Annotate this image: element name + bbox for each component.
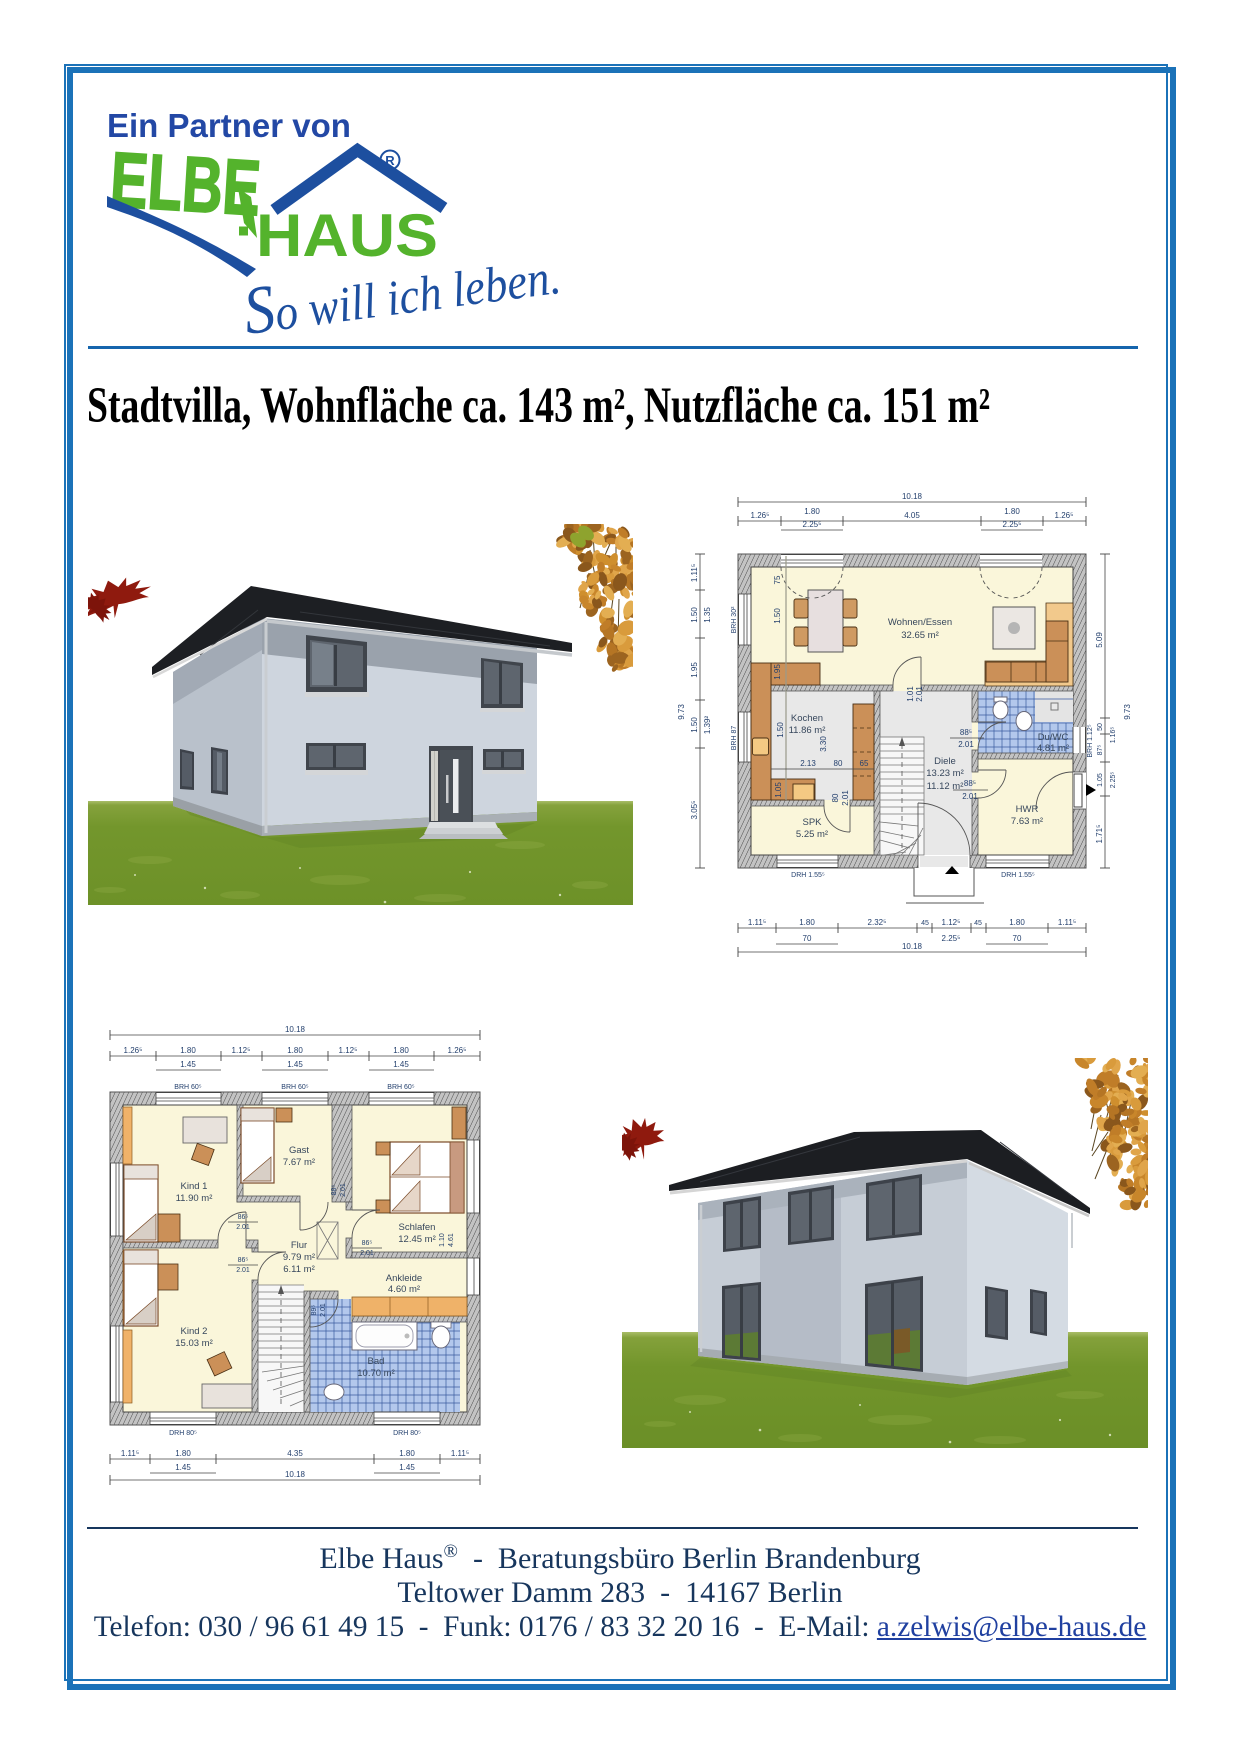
svg-text:1.45: 1.45 bbox=[393, 1060, 409, 1069]
svg-text:DRH 1.55⁵: DRH 1.55⁵ bbox=[791, 872, 825, 879]
svg-text:1.35: 1.35 bbox=[703, 607, 712, 623]
svg-text:88⁵: 88⁵ bbox=[964, 779, 976, 788]
svg-text:80: 80 bbox=[834, 759, 843, 768]
svg-text:4.60 m²: 4.60 m² bbox=[388, 1284, 420, 1295]
svg-text:BRH 87: BRH 87 bbox=[731, 726, 738, 751]
svg-text:Flur: Flur bbox=[291, 1240, 307, 1251]
svg-text:9.73: 9.73 bbox=[677, 704, 686, 720]
svg-text:3.30: 3.30 bbox=[819, 736, 828, 752]
svg-text:1.26⁵: 1.26⁵ bbox=[751, 511, 770, 520]
svg-text:1.80: 1.80 bbox=[287, 1046, 303, 1055]
svg-text:87⁵: 87⁵ bbox=[1097, 745, 1104, 756]
svg-text:1.05: 1.05 bbox=[774, 782, 783, 798]
svg-text:Wohnen/Essen: Wohnen/Essen bbox=[888, 617, 952, 628]
svg-text:Bad: Bad bbox=[368, 1356, 385, 1367]
svg-text:4.05: 4.05 bbox=[904, 511, 920, 520]
svg-text:2.32⁵: 2.32⁵ bbox=[868, 918, 887, 927]
svg-text:89⁵: 89⁵ bbox=[311, 1305, 318, 1316]
svg-text:4.61: 4.61 bbox=[448, 1233, 455, 1247]
svg-text:10.18: 10.18 bbox=[902, 492, 923, 501]
svg-text:45: 45 bbox=[974, 920, 982, 927]
svg-text:BRH 60⁵: BRH 60⁵ bbox=[281, 1084, 309, 1091]
svg-text:DRH 80⁵: DRH 80⁵ bbox=[393, 1430, 421, 1437]
svg-text:1.80: 1.80 bbox=[175, 1449, 191, 1458]
svg-text:2.25⁵: 2.25⁵ bbox=[1003, 520, 1022, 529]
svg-text:1.50: 1.50 bbox=[773, 608, 782, 624]
svg-text:Stadtvilla, Wohnfläche ca. 143: Stadtvilla, Wohnfläche ca. 143 m², Nutzf… bbox=[87, 377, 990, 433]
svg-text:1.12⁵: 1.12⁵ bbox=[232, 1046, 251, 1055]
svg-text:1.39²: 1.39² bbox=[703, 716, 712, 735]
svg-text:BRH 60⁵: BRH 60⁵ bbox=[174, 1084, 202, 1091]
svg-text:7.67 m²: 7.67 m² bbox=[283, 1157, 315, 1168]
svg-text:9.79 m²: 9.79 m² bbox=[283, 1252, 315, 1263]
svg-text:1.05: 1.05 bbox=[1097, 773, 1104, 787]
svg-text:Kochen: Kochen bbox=[791, 713, 823, 724]
svg-text:Kind 1: Kind 1 bbox=[181, 1181, 208, 1192]
svg-text:1.80: 1.80 bbox=[399, 1449, 415, 1458]
svg-text:1.45: 1.45 bbox=[287, 1060, 303, 1069]
svg-text:1.11⁵: 1.11⁵ bbox=[748, 918, 766, 927]
svg-text:1.45: 1.45 bbox=[399, 1463, 415, 1472]
svg-text:32.65 m²: 32.65 m² bbox=[901, 630, 939, 641]
svg-text:75: 75 bbox=[773, 575, 782, 584]
svg-text:50: 50 bbox=[1097, 723, 1104, 731]
svg-text:1.80: 1.80 bbox=[1004, 507, 1020, 516]
svg-text:1.26⁵: 1.26⁵ bbox=[124, 1046, 143, 1055]
svg-text:1.45: 1.45 bbox=[180, 1060, 196, 1069]
svg-text:2.01: 2.01 bbox=[841, 790, 850, 806]
svg-text:11.90 m²: 11.90 m² bbox=[176, 1193, 213, 1204]
svg-text:2.25⁵: 2.25⁵ bbox=[942, 934, 961, 943]
svg-text:1.26⁵: 1.26⁵ bbox=[448, 1046, 467, 1055]
svg-text:1.16⁵: 1.16⁵ bbox=[1110, 727, 1117, 744]
svg-text:SPK: SPK bbox=[802, 817, 822, 828]
svg-text:7.63 m²: 7.63 m² bbox=[1011, 816, 1043, 827]
svg-text:88⁵: 88⁵ bbox=[960, 728, 972, 737]
svg-text:45: 45 bbox=[921, 920, 929, 927]
svg-text:2.01: 2.01 bbox=[915, 686, 924, 702]
svg-text:1.11⁵: 1.11⁵ bbox=[1058, 918, 1076, 927]
svg-text:4.81 m²: 4.81 m² bbox=[1037, 743, 1069, 754]
svg-text:Schlafen: Schlafen bbox=[399, 1222, 436, 1233]
svg-text:Diele: Diele bbox=[934, 756, 956, 767]
svg-text:5.09: 5.09 bbox=[1095, 632, 1104, 648]
svg-text:1.50: 1.50 bbox=[690, 607, 699, 623]
svg-text:1.50: 1.50 bbox=[690, 717, 699, 733]
svg-text:1.11⁵: 1.11⁵ bbox=[121, 1449, 139, 1458]
svg-text:2.01: 2.01 bbox=[360, 1250, 374, 1257]
svg-text:1.12⁵: 1.12⁵ bbox=[942, 918, 961, 927]
svg-text:2.01: 2.01 bbox=[236, 1224, 250, 1231]
svg-text:86⁵: 86⁵ bbox=[238, 1257, 249, 1264]
svg-text:2.01: 2.01 bbox=[340, 1183, 347, 1197]
svg-text:10.18: 10.18 bbox=[285, 1025, 306, 1034]
svg-text:DRH 80⁵: DRH 80⁵ bbox=[169, 1430, 197, 1437]
svg-text:1.12⁵: 1.12⁵ bbox=[339, 1046, 358, 1055]
svg-text:9.73: 9.73 bbox=[1123, 704, 1132, 720]
svg-text:88⁵: 88⁵ bbox=[331, 1185, 338, 1196]
svg-text:BRH 1.12⁵: BRH 1.12⁵ bbox=[1087, 724, 1094, 757]
svg-text:5.25 m²: 5.25 m² bbox=[796, 829, 828, 840]
svg-text:11.12 m²: 11.12 m² bbox=[927, 781, 964, 792]
svg-text:80: 80 bbox=[831, 793, 840, 802]
svg-text:2.01: 2.01 bbox=[320, 1303, 327, 1317]
svg-text:1.45: 1.45 bbox=[175, 1463, 191, 1472]
svg-text:Du/WC: Du/WC bbox=[1038, 732, 1069, 743]
svg-text:Gast: Gast bbox=[289, 1145, 309, 1156]
svg-text:2.25⁵: 2.25⁵ bbox=[803, 520, 822, 529]
svg-text:Ankleide: Ankleide bbox=[386, 1273, 422, 1284]
svg-text:2.01: 2.01 bbox=[958, 740, 974, 749]
svg-text:1.11⁵: 1.11⁵ bbox=[690, 564, 699, 582]
svg-text:65: 65 bbox=[860, 759, 869, 768]
svg-text:HWR: HWR bbox=[1016, 804, 1039, 815]
svg-text:86⁵: 86⁵ bbox=[238, 1214, 249, 1221]
svg-text:2.13: 2.13 bbox=[800, 759, 816, 768]
svg-text:BRH 60⁵: BRH 60⁵ bbox=[387, 1084, 415, 1091]
svg-text:1.80: 1.80 bbox=[180, 1046, 196, 1055]
svg-text:1.80: 1.80 bbox=[1009, 918, 1025, 927]
svg-text:70: 70 bbox=[803, 934, 812, 943]
svg-text:1.26⁵: 1.26⁵ bbox=[1055, 511, 1074, 520]
svg-text:1.95: 1.95 bbox=[690, 662, 699, 678]
svg-text:12.45 m²: 12.45 m² bbox=[398, 1234, 436, 1245]
svg-text:2.01: 2.01 bbox=[962, 792, 978, 801]
svg-text:15.03 m²: 15.03 m² bbox=[175, 1338, 213, 1349]
svg-text:86⁵: 86⁵ bbox=[362, 1240, 373, 1247]
svg-text:4.35: 4.35 bbox=[287, 1449, 303, 1458]
svg-text:1.01: 1.01 bbox=[906, 686, 915, 702]
svg-text:2.25⁵: 2.25⁵ bbox=[1110, 772, 1117, 789]
svg-text:1.95: 1.95 bbox=[773, 664, 782, 680]
svg-text:1.11⁵: 1.11⁵ bbox=[451, 1449, 469, 1458]
svg-text:6.11 m²: 6.11 m² bbox=[283, 1264, 315, 1275]
svg-text:3.05⁵: 3.05⁵ bbox=[690, 801, 699, 820]
svg-text:DRH 1.55⁵: DRH 1.55⁵ bbox=[1001, 872, 1035, 879]
svg-text:10.70 m²: 10.70 m² bbox=[357, 1368, 395, 1379]
svg-text:BRH 30²: BRH 30² bbox=[731, 606, 738, 634]
svg-text:1.10: 1.10 bbox=[439, 1233, 446, 1247]
svg-text:11.86 m²: 11.86 m² bbox=[789, 725, 826, 736]
svg-text:1.80: 1.80 bbox=[804, 507, 820, 516]
svg-text:10.18: 10.18 bbox=[285, 1470, 306, 1479]
svg-text:1.50: 1.50 bbox=[776, 722, 785, 738]
svg-text:2.01: 2.01 bbox=[236, 1267, 250, 1274]
svg-text:1.80: 1.80 bbox=[393, 1046, 409, 1055]
svg-text:1.71⁵: 1.71⁵ bbox=[1095, 825, 1104, 844]
svg-text:70: 70 bbox=[1013, 934, 1022, 943]
svg-text:Kind 2: Kind 2 bbox=[181, 1326, 208, 1337]
svg-text:10.18: 10.18 bbox=[902, 942, 923, 951]
svg-text:13.23 m²: 13.23 m² bbox=[926, 768, 964, 779]
svg-text:1.80: 1.80 bbox=[799, 918, 815, 927]
